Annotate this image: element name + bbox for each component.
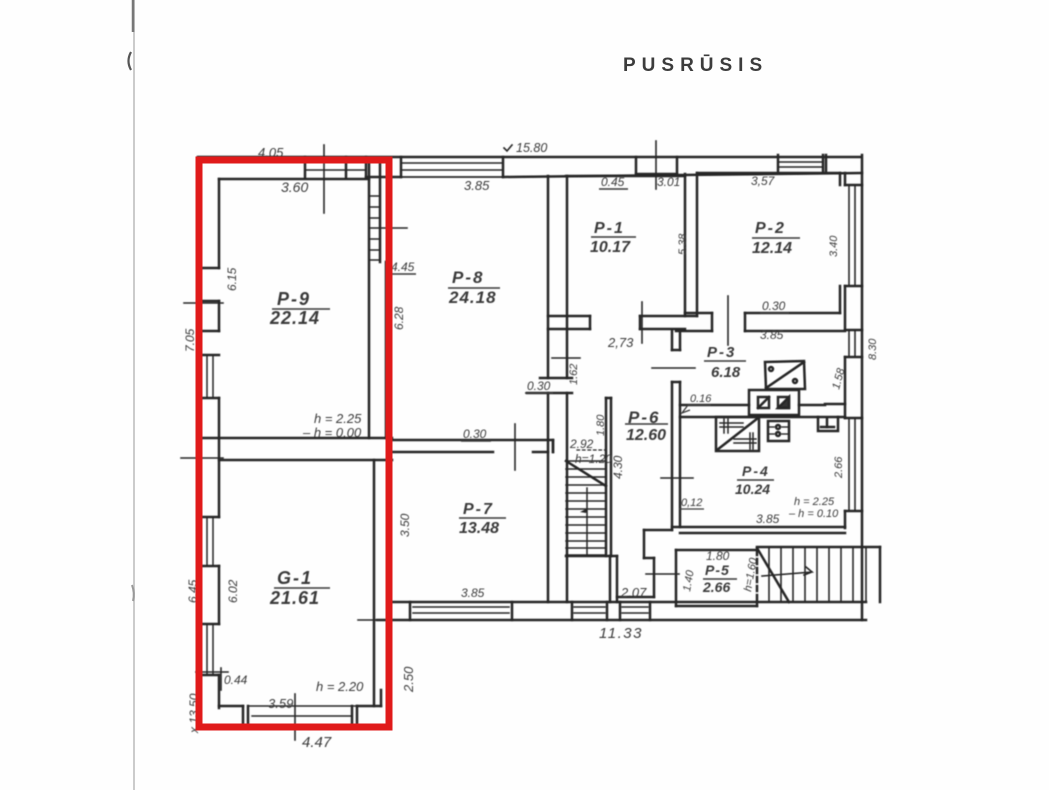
svg-text:P-1: P-1 (594, 220, 625, 237)
svg-text:2.07: 2.07 (620, 585, 647, 600)
svg-text:21.61: 21.61 (269, 588, 320, 608)
svg-text:6.18: 6.18 (711, 364, 741, 381)
svg-text:0.16: 0.16 (690, 393, 712, 405)
svg-text:3.59: 3.59 (268, 696, 293, 711)
svg-text:3.60: 3.60 (281, 179, 308, 195)
svg-text:3.85: 3.85 (464, 178, 490, 193)
svg-text:0,12: 0,12 (681, 497, 702, 509)
svg-text:3,57: 3,57 (751, 174, 776, 188)
svg-text:3.85: 3.85 (461, 586, 485, 600)
svg-text:3.85: 3.85 (760, 328, 784, 342)
svg-text:1.62: 1.62 (568, 364, 580, 385)
svg-text:0.30: 0.30 (463, 427, 487, 441)
svg-text:3.50: 3.50 (398, 513, 412, 537)
svg-text:P-3: P-3 (707, 344, 736, 361)
svg-text:4.47: 4.47 (302, 734, 332, 751)
svg-text:h=1.20: h=1.20 (575, 452, 612, 466)
svg-text:22.14: 22.14 (269, 308, 320, 328)
svg-text:12.60: 12.60 (626, 427, 666, 444)
svg-text:6.15: 6.15 (225, 267, 239, 291)
svg-text:– h = 0.10: – h = 0.10 (788, 508, 839, 520)
svg-text:7.05: 7.05 (183, 328, 197, 352)
svg-text:10.17: 10.17 (590, 239, 631, 256)
svg-text:5.38: 5.38 (677, 233, 689, 255)
svg-text:P-5: P-5 (705, 562, 730, 578)
svg-text:4.45: 4.45 (391, 260, 415, 274)
svg-text:3.40: 3.40 (828, 235, 840, 257)
svg-text:0.30: 0.30 (527, 379, 551, 393)
svg-text:P-8: P-8 (452, 268, 484, 287)
svg-text:12.14: 12.14 (752, 240, 792, 257)
svg-text:10.24: 10.24 (735, 481, 770, 497)
svg-text:0.44: 0.44 (224, 673, 248, 687)
svg-text:3.01: 3.01 (657, 175, 680, 189)
svg-text:2,73: 2,73 (607, 335, 634, 350)
svg-text:PUSRŪSIS: PUSRŪSIS (623, 55, 768, 76)
svg-text:1.80: 1.80 (706, 549, 730, 563)
svg-text:– h = 0.00: – h = 0.00 (302, 425, 362, 440)
svg-text:P-2: P-2 (755, 220, 786, 237)
svg-text:6.02: 6.02 (226, 579, 240, 603)
svg-text:8.30: 8.30 (867, 338, 879, 360)
svg-text:15.80: 15.80 (516, 141, 547, 155)
svg-text:2.66: 2.66 (833, 456, 845, 479)
svg-text:3.85: 3.85 (756, 512, 780, 526)
svg-text:P-9: P-9 (277, 289, 311, 309)
svg-text:P-7: P-7 (463, 501, 494, 518)
svg-text:2.66: 2.66 (702, 579, 730, 595)
svg-text:G-1: G-1 (277, 568, 313, 588)
svg-text:4.30: 4.30 (611, 455, 625, 479)
svg-text:13.48: 13.48 (459, 520, 499, 537)
svg-text:2.92: 2.92 (569, 437, 594, 451)
svg-text:0.30: 0.30 (762, 299, 786, 313)
svg-text:h = 2.25: h = 2.25 (314, 411, 362, 426)
svg-text:24.18: 24.18 (448, 288, 497, 307)
svg-text:2.50: 2.50 (401, 666, 416, 693)
svg-text:0.45: 0.45 (601, 175, 625, 189)
svg-text:P-4: P-4 (742, 463, 770, 479)
svg-text:11.33: 11.33 (599, 625, 643, 642)
svg-text:h = 2.20: h = 2.20 (316, 679, 364, 694)
svg-text:1.80: 1.80 (595, 414, 607, 436)
svg-text:h = 2.25: h = 2.25 (794, 496, 835, 508)
svg-text:6.28: 6.28 (392, 306, 406, 330)
